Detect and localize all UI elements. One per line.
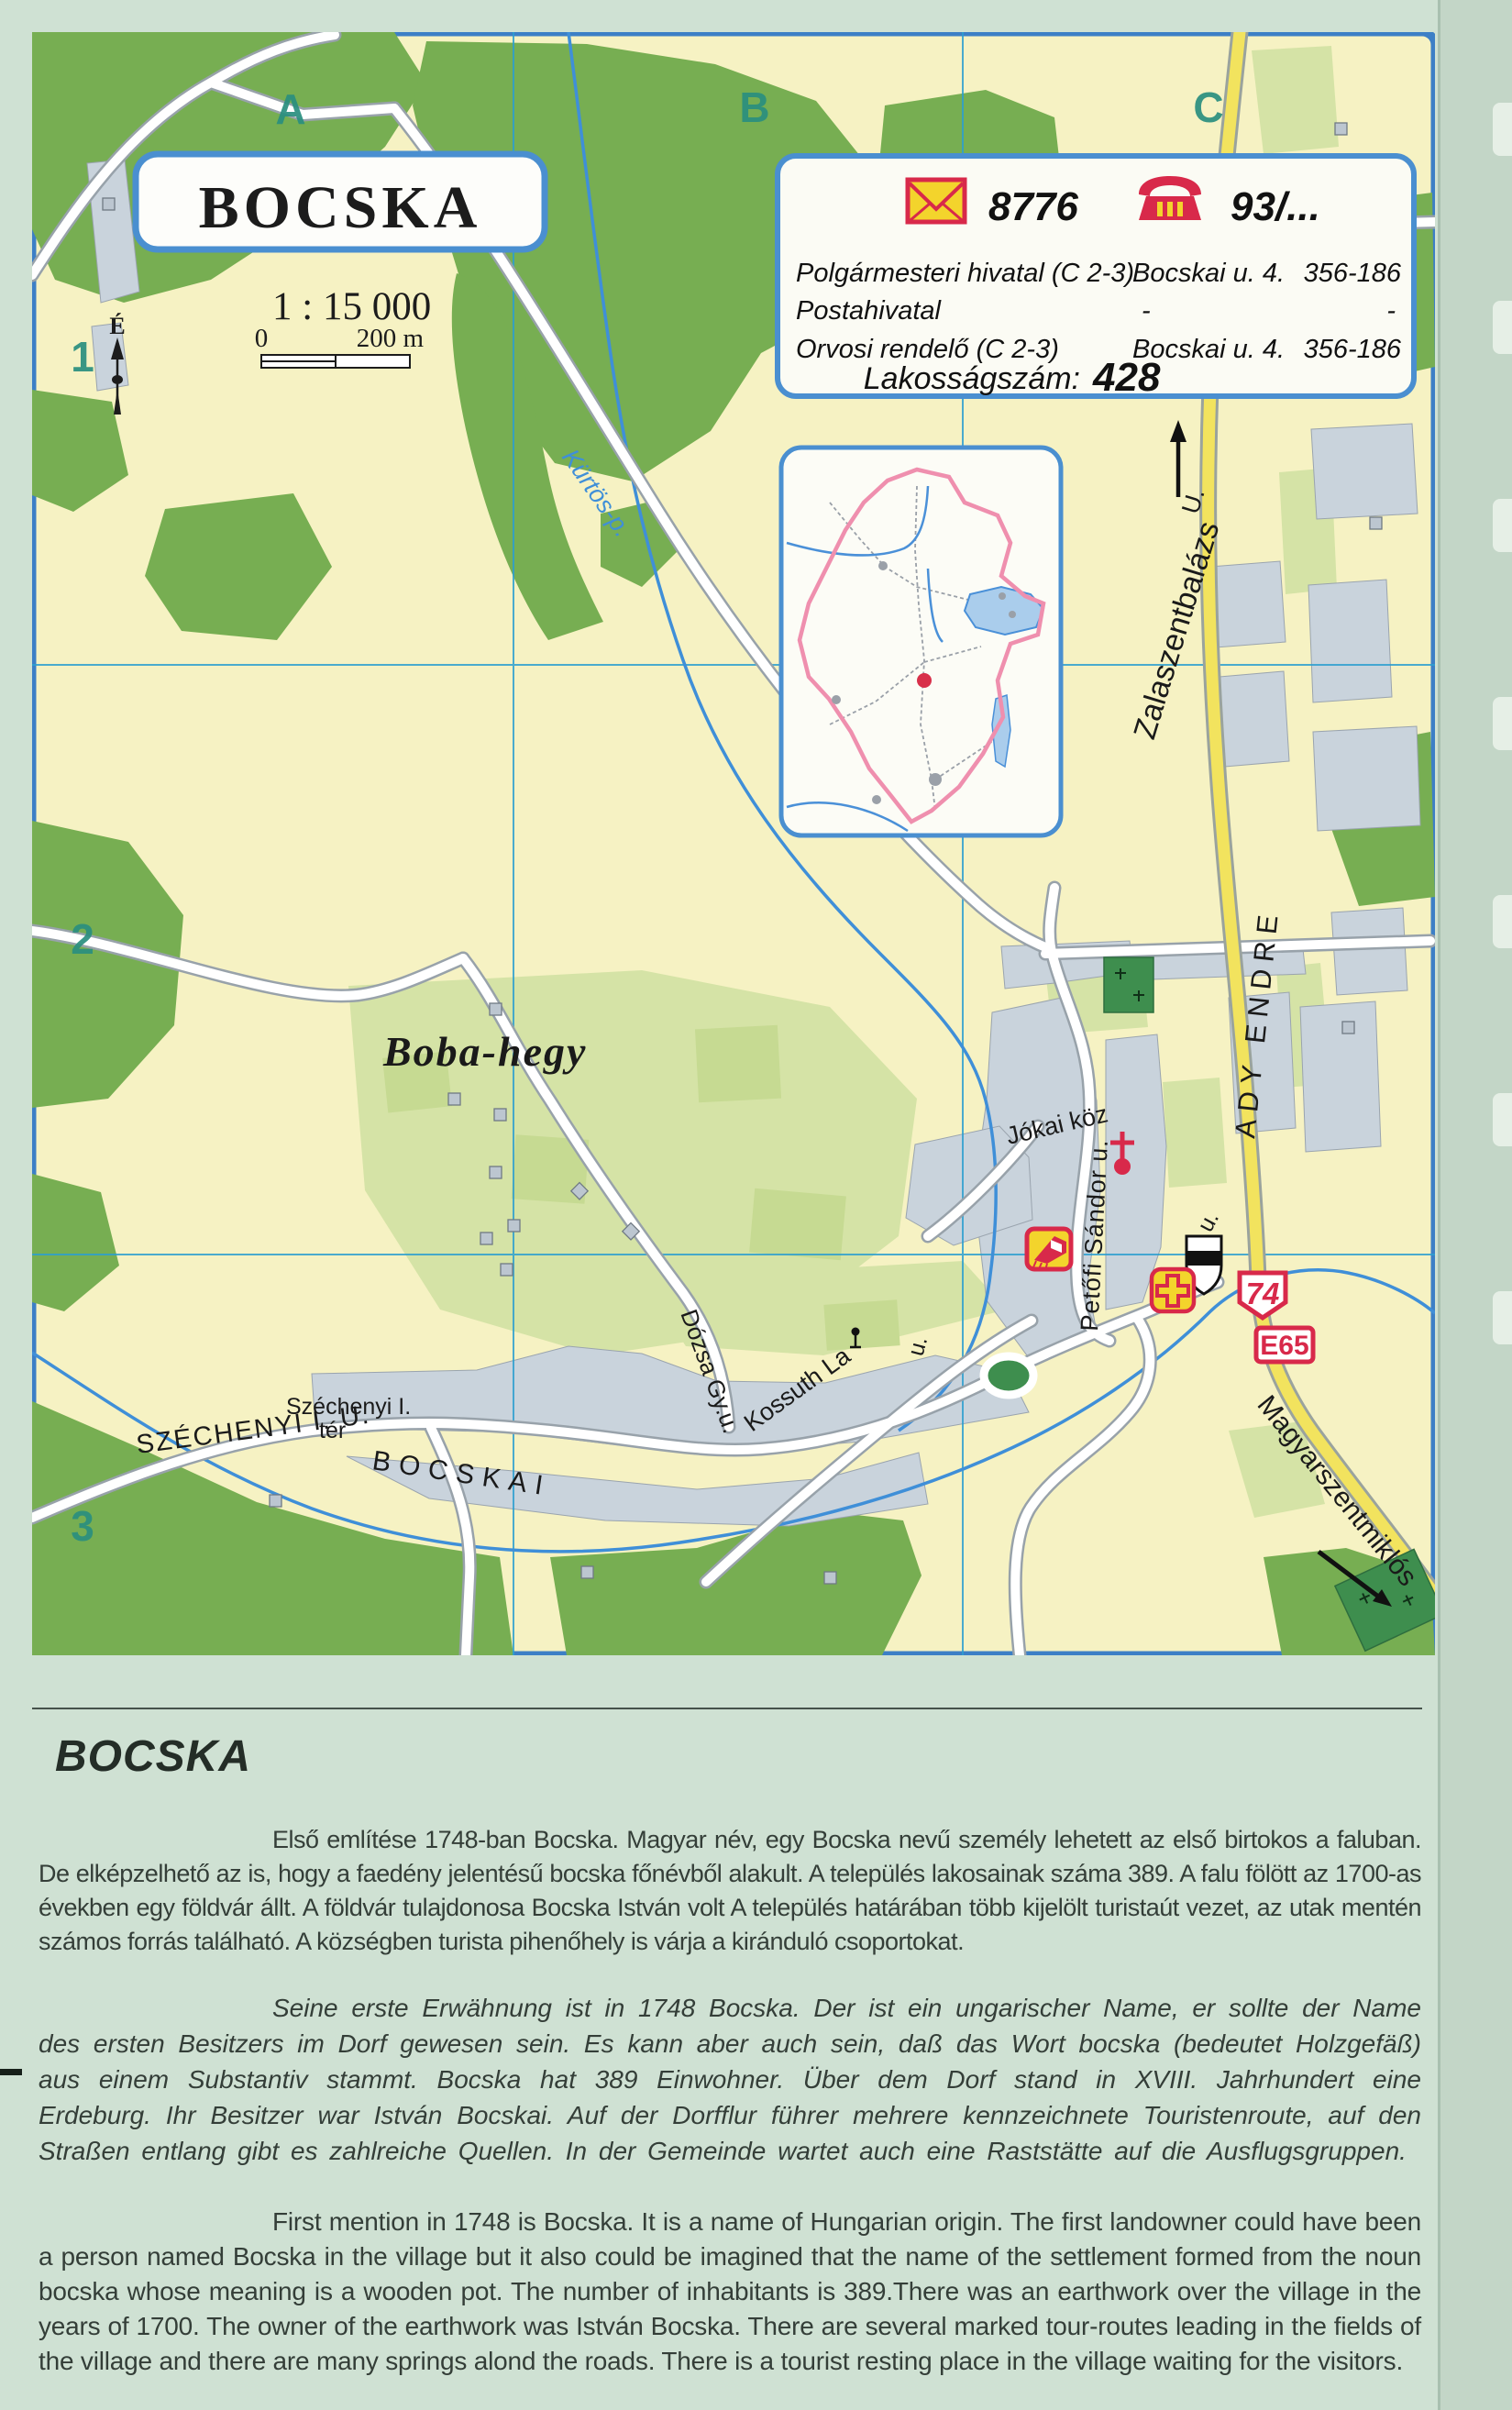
info-row-phone: - bbox=[1386, 296, 1396, 326]
edge-notch bbox=[1493, 103, 1512, 156]
info-row-address: Bocskai u. 4. bbox=[1132, 259, 1285, 288]
scale-end: 200 m bbox=[357, 324, 425, 353]
info-row-name: Postahivatal bbox=[796, 296, 943, 326]
village-location-dot bbox=[917, 673, 932, 688]
square-line2: tér bbox=[319, 1418, 346, 1443]
grid-row-1: 1 bbox=[71, 333, 94, 381]
edge-notch bbox=[1493, 1093, 1512, 1146]
cemetery bbox=[1104, 957, 1153, 1012]
edge-notch bbox=[1493, 895, 1512, 948]
phone-icon bbox=[1139, 176, 1201, 220]
info-row-phone: 356-186 bbox=[1304, 335, 1402, 364]
info-box: 8776 93/... Polgármesteri hivatal (C 2-3… bbox=[778, 156, 1414, 400]
map-title: BOCSKA bbox=[199, 174, 482, 241]
map-title-box: BOCSKA bbox=[136, 154, 545, 249]
grid-col-b: B bbox=[739, 83, 769, 131]
edge-notch bbox=[1493, 1291, 1512, 1344]
info-row-phone: 356-186 bbox=[1304, 259, 1402, 288]
scale-zero: 0 bbox=[255, 324, 269, 353]
grid-row-2: 2 bbox=[71, 915, 94, 963]
scanned-atlas-page: 74 E65 Boba-hegy Kürtös-p. Zalaszentbalá… bbox=[0, 0, 1512, 2410]
landmark-icon bbox=[1027, 1229, 1071, 1270]
north-label: É bbox=[109, 313, 125, 339]
population-label: Lakosságszám: bbox=[864, 361, 1080, 396]
info-row-address: - bbox=[1142, 296, 1151, 326]
page-torn-edge bbox=[1438, 0, 1512, 2410]
section-divider bbox=[32, 1708, 1422, 1709]
grid-col-c: C bbox=[1193, 83, 1223, 131]
phone-code: 93/... bbox=[1231, 184, 1320, 229]
edge-notch bbox=[1493, 499, 1512, 552]
paragraph-german: Seine erste Erwähnung ist in 1748 Bocska… bbox=[39, 1990, 1421, 2169]
paragraph-english: First mention in 1748 is Bocska. It is a… bbox=[39, 2205, 1421, 2379]
road-number: 74 bbox=[1246, 1277, 1280, 1310]
postal-code: 8776 bbox=[988, 184, 1078, 229]
info-row-name: Polgármesteri hivatal (C 2-3) bbox=[796, 259, 1134, 288]
edge-notch bbox=[1493, 697, 1512, 750]
inset-map bbox=[781, 448, 1061, 835]
medical-cross-icon bbox=[1152, 1269, 1194, 1311]
envelope-icon bbox=[908, 180, 965, 222]
edge-notch bbox=[1493, 301, 1512, 354]
grid-row-3: 3 bbox=[71, 1502, 94, 1550]
population-value: 428 bbox=[1092, 355, 1161, 400]
scale-bar: 1 : 15 000 0 200 m bbox=[255, 285, 431, 368]
paragraph-hungarian: Első említése 1748-ban Bocska. Magyar né… bbox=[39, 1823, 1421, 1959]
hill-label: Boba-hegy bbox=[382, 1028, 587, 1075]
road-sign-e65: E65 bbox=[1256, 1328, 1313, 1362]
sports-field bbox=[984, 1356, 1033, 1395]
article-heading: BOCSKA bbox=[55, 1731, 251, 1782]
scale-ratio: 1 : 15 000 bbox=[272, 285, 431, 328]
margin-dash bbox=[0, 2069, 22, 2075]
square-line1: Széchenyi I. bbox=[286, 1394, 411, 1420]
road-euro-number: E65 bbox=[1260, 1331, 1308, 1361]
grid-col-a: A bbox=[275, 85, 305, 133]
village-map: 74 E65 Boba-hegy Kürtös-p. Zalaszentbalá… bbox=[32, 32, 1435, 1655]
info-row-name: Orvosi rendelő (C 2-3) bbox=[796, 335, 1059, 364]
